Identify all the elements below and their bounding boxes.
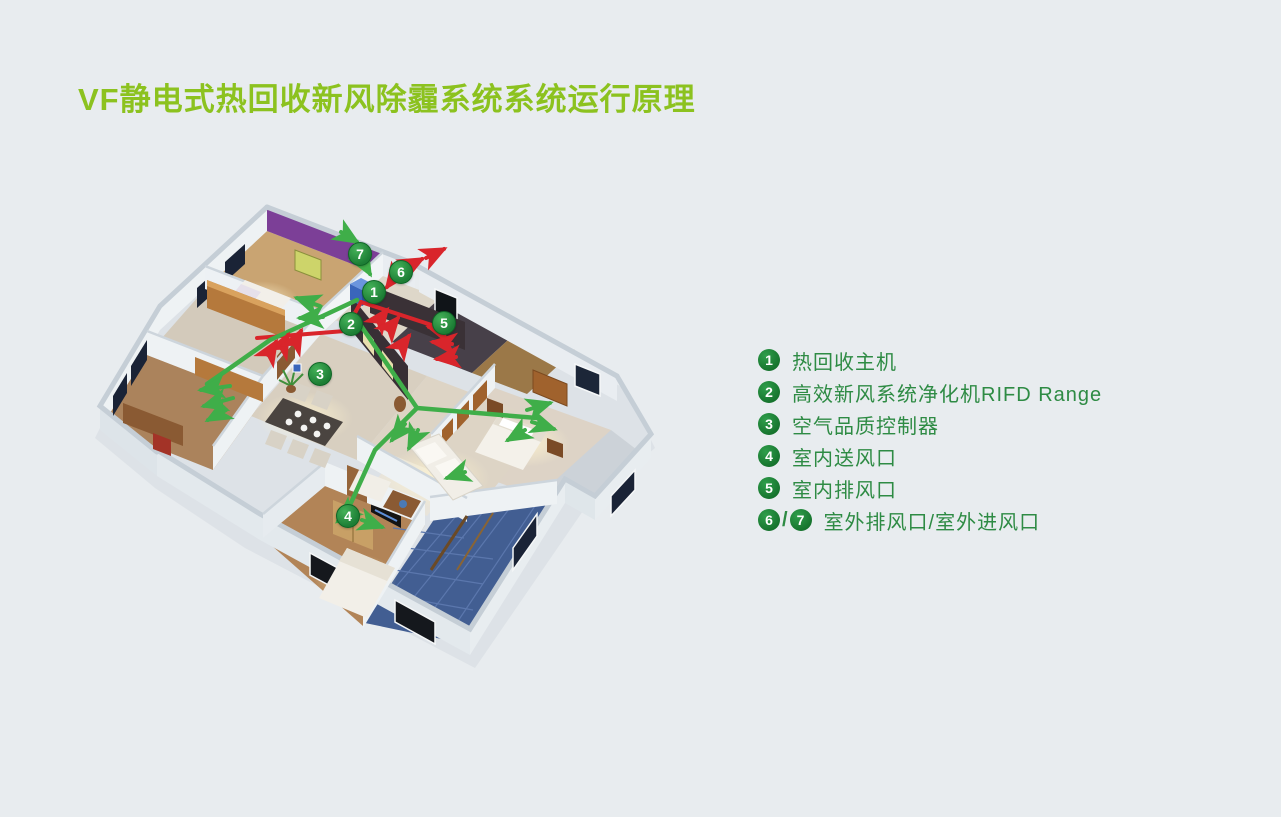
legend-label-4: 室内送风口 — [792, 442, 897, 471]
marker-2-purifier: 2 — [339, 312, 363, 336]
floorplan-render: 1 2 3 4 5 6 7 — [95, 190, 670, 695]
marker-7-outdoor-intake-vent: 7 — [348, 242, 372, 266]
legend-label-3: 空气品质控制器 — [792, 410, 939, 439]
marker-1-heat-recovery-unit: 1 — [362, 280, 386, 304]
legend-badge-1: 1 — [758, 349, 780, 371]
legend-badge-4: 4 — [758, 445, 780, 467]
marker-4-indoor-supply-vent: 4 — [336, 504, 360, 528]
legend-badge-2: 2 — [758, 381, 780, 403]
legend-item-indoor-exhaust-vent: 5 室内排风口 — [758, 477, 1102, 499]
legend-badge-5: 5 — [758, 477, 780, 499]
legend-badge-separator: / — [782, 509, 788, 532]
air-quality-controller — [293, 364, 301, 372]
legend-badge-3: 3 — [758, 413, 780, 435]
legend-item-purifier: 2 高效新风系统净化机RIFD Range — [758, 381, 1102, 403]
legend-item-outdoor-vents: 6 / 7 室外排风口/室外进风口 — [758, 509, 1102, 531]
legend-label-6-7: 室外排风口/室外进风口 — [824, 506, 1041, 535]
marker-5-indoor-exhaust-vent: 5 — [432, 311, 456, 335]
marker-3-air-quality-controller: 3 — [308, 362, 332, 386]
legend-item-indoor-supply-vent: 4 室内送风口 — [758, 445, 1102, 467]
legend: 1 热回收主机 2 高效新风系统净化机RIFD Range 3 空气品质控制器 … — [758, 349, 1102, 541]
page: { "title": "VF静电式热回收新风除霾系统系统运行原理", "colo… — [0, 0, 1281, 817]
legend-label-2: 高效新风系统净化机RIFD Range — [792, 378, 1102, 407]
marker-6-outdoor-exhaust-vent: 6 — [389, 260, 413, 284]
floorplan-svg — [95, 190, 670, 695]
legend-item-air-quality-controller: 3 空气品质控制器 — [758, 413, 1102, 435]
legend-label-5: 室内排风口 — [792, 474, 897, 503]
legend-label-1: 热回收主机 — [792, 346, 897, 375]
legend-item-heat-recovery-unit: 1 热回收主机 — [758, 349, 1102, 371]
legend-badge-7: 7 — [790, 509, 812, 531]
page-title: VF静电式热回收新风除霾系统系统运行原理 — [78, 74, 696, 119]
legend-badge-6: 6 — [758, 509, 780, 531]
